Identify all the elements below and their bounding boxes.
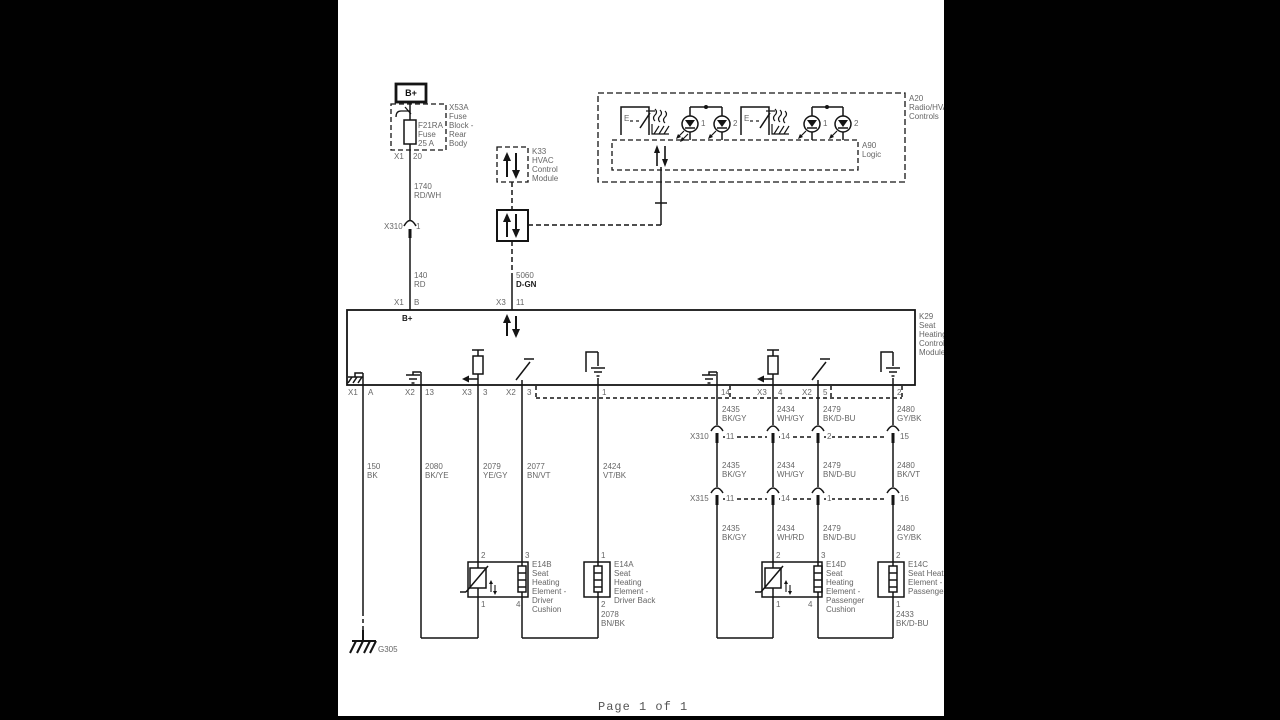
heating-element-symbol: [814, 562, 822, 597]
e14a-pin: 1: [601, 551, 605, 560]
wire-label-2480-l: 2480 GY/BK: [897, 524, 921, 542]
wire-label-2479-l: 2479 BN/D-BU: [823, 524, 856, 542]
battery-positive-label: B+: [396, 88, 426, 98]
output-driver-symbol-x3-3: [462, 350, 484, 385]
inline-connector-x310-power-icon: [404, 221, 416, 239]
wire-label-2078: 2078 BN/BK: [601, 610, 625, 628]
ground-symbol-g305: [350, 630, 376, 653]
wire-color-5060: D-GN: [516, 280, 536, 289]
switch-symbol-x2-3: [516, 359, 534, 385]
k29-pin-num: 1: [602, 388, 606, 397]
heating-element-symbol: [518, 562, 526, 597]
k29-pin-num: 14: [721, 388, 730, 397]
internal-ground-symbol-pin1: [586, 352, 605, 385]
internal-ground-symbol-pin2: [881, 352, 900, 385]
e14b-pin: 1: [481, 600, 485, 609]
k29-top-pin-conn-2: X3: [496, 298, 506, 307]
wire-label-2434-l: 2434 WH/RD: [777, 524, 804, 542]
k29-bplus-label: B+: [402, 314, 412, 323]
e14b-pin: 2: [481, 551, 485, 560]
connector-x315-pin: 11: [725, 494, 735, 503]
e14d-pin: 3: [821, 551, 825, 560]
k33-module-label: K33 HVAC Control Module: [532, 147, 558, 183]
fuse-symbol: [404, 120, 416, 144]
k33-hvac-module-box: [497, 147, 528, 182]
wire-label-5060: 5060: [516, 271, 534, 280]
switch-letter-1: E: [624, 114, 629, 123]
fuse-block-label: X53A Fuse Block - Rear Body: [449, 103, 473, 148]
e14b-element-box: [460, 562, 528, 597]
letterbox-left: [0, 0, 338, 720]
wire-label-2480-u: 2480 GY/BK: [897, 405, 921, 423]
k29-pin-num: 2: [897, 388, 901, 397]
wire-label-2435-u: 2435 BK/GY: [722, 405, 746, 423]
data-arrows-icon-a90: [654, 145, 668, 167]
e14b-pin: 3: [525, 551, 529, 560]
e14a-element-box: [584, 562, 610, 597]
e14c-element-box: [878, 562, 904, 597]
e14d-pin: 1: [776, 600, 780, 609]
connector-x310-pin: 15: [899, 432, 910, 441]
e14b-pin: 4: [516, 600, 520, 609]
connector-x310-power-pin: 1: [416, 222, 420, 231]
k29-top-pin-conn-1: X1: [394, 298, 404, 307]
k29-pin-num: 5: [823, 388, 827, 397]
k29-module-box: [347, 310, 915, 385]
output-driver-symbol-x3-4: [757, 350, 779, 385]
connector-x310-pin: 11: [725, 432, 735, 441]
inline-connector-row-x315: [711, 488, 899, 505]
heating-element-symbol: [594, 562, 602, 597]
connector-x310-pin: 14: [780, 432, 791, 441]
data-arrows-icon: [503, 152, 520, 179]
connector-x315-pin: 1: [826, 494, 832, 503]
wire-label-150: 150 BK: [367, 462, 380, 480]
e14c-pin: 2: [896, 551, 900, 560]
connector-x315-pin: 14: [780, 494, 791, 503]
ground-symbol-x2-13: [406, 372, 421, 385]
connector-x310-power-label: X310: [384, 222, 403, 231]
connector-x315-pin: 16: [899, 494, 910, 503]
k29-pin-num: A: [368, 388, 373, 397]
wire-label-2480-m: 2480 BK/VT: [897, 461, 920, 479]
k29-pin-num: 4: [778, 388, 782, 397]
thermistor-symbol: [460, 562, 497, 597]
fuse-pin-connector: X1: [394, 152, 404, 161]
led-label-4: 2: [854, 119, 858, 128]
wire-label-2433: 2433 BK/D-BU: [896, 610, 928, 628]
page-number: Page 1 of 1: [598, 700, 688, 714]
k29-pin-conn: X2: [405, 388, 415, 397]
connector-x310-label: X310: [690, 432, 709, 441]
k29-pin-num: 3: [527, 388, 531, 397]
e14d-pin: 2: [776, 551, 780, 560]
wire-label-2079: 2079 YE/GY: [483, 462, 507, 480]
k29-top-pin-num-1: B: [414, 298, 419, 307]
wire-label-2434-m: 2434 WH/GY: [777, 461, 804, 479]
e14d-pin: 4: [808, 600, 812, 609]
wire-label-2080: 2080 BK/YE: [425, 462, 449, 480]
data-arrows-icon: [503, 213, 520, 238]
switch-symbol-x2-5: [812, 359, 830, 385]
led-label-2: 2: [733, 119, 737, 128]
heated-seat-icon-1: [652, 109, 669, 134]
letterbox-right: [944, 0, 1280, 720]
fuse-pin-number: 20: [413, 152, 422, 161]
k29-pin-conn: X3: [462, 388, 472, 397]
fuse-label: F21RA Fuse 25 A: [418, 121, 443, 148]
k29-pin-num: 13: [425, 388, 434, 397]
e14a-pin: 2: [601, 600, 605, 609]
k29-pin-conn: X1: [348, 388, 358, 397]
schematic-page: { "footer": "Page 1 of 1", "power": { "b…: [0, 0, 1280, 720]
k29-pin-conn: X2: [802, 388, 812, 397]
wire-label-2479-m: 2479 BN/D-BU: [823, 461, 856, 479]
e14a-label: E14A Seat Heating Element - Driver Back: [614, 560, 655, 605]
thermistor-symbol: [755, 562, 792, 597]
e14b-label: E14B Seat Heating Element - Driver Cushi…: [532, 560, 566, 614]
heating-element-symbol: [889, 562, 897, 597]
switch-letter-2: E: [744, 114, 749, 123]
k29-pin-conn: X2: [506, 388, 516, 397]
letterbox-bottom: [0, 716, 1280, 720]
ground-symbol-pin14: [702, 372, 717, 385]
wire-label-2435-m: 2435 BK/GY: [722, 461, 746, 479]
e14c-pin: 1: [896, 600, 900, 609]
e14d-label: E14D Seat Heating Element - Passenger Cu…: [826, 560, 864, 614]
connector-x310-pin: 2: [826, 432, 832, 441]
inline-connector-row-x310: [711, 426, 899, 443]
a90-logic-label: A90 Logic: [862, 141, 881, 159]
wire-label-2077: 2077 BN/VT: [527, 462, 551, 480]
k29-top-pin-num-2: 11: [516, 298, 524, 307]
wire-label-2479-u: 2479 BK/D-BU: [823, 405, 855, 423]
led-label-1: 1: [701, 119, 705, 128]
serial-data-gateway-box: [497, 210, 528, 241]
led-label-3: 1: [823, 119, 827, 128]
connector-x315-label: X315: [690, 494, 709, 503]
wire-label-2434-u: 2434 WH/GY: [777, 405, 804, 423]
ground-g305-label: G305: [378, 645, 398, 654]
wire-label-2424: 2424 VT/BK: [603, 462, 626, 480]
wire-label-1740: 1740 RD/WH: [414, 182, 441, 200]
a90-logic-box: [612, 140, 858, 170]
e14d-element-box: [755, 562, 822, 597]
chassis-ground-symbol-x1a: [348, 373, 363, 385]
data-arrows-icon-k29: [503, 314, 520, 338]
heated-seat-icon-2: [772, 109, 789, 134]
connector-indicator-dashes: [536, 386, 902, 398]
k29-pin-num: 3: [483, 388, 487, 397]
k29-module-label: K29 Seat Heating Control Module: [919, 312, 947, 357]
k29-pin-conn: X3: [757, 388, 767, 397]
wire-label-140: 140 RD: [414, 271, 427, 289]
wire-label-2435-l: 2435 BK/GY: [722, 524, 746, 542]
